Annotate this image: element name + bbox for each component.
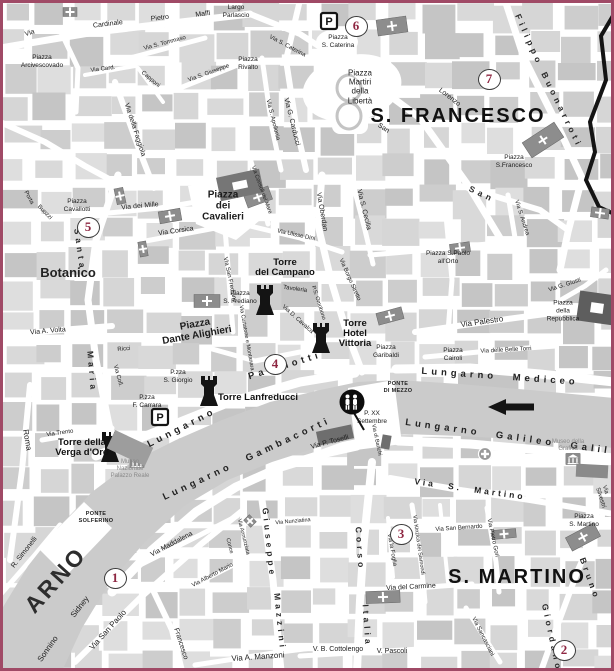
building-icon [576,291,614,326]
pedestrians-icon [340,390,365,415]
city-map[interactable]: P P ViaCardinalePietroMaffiLargo Parlasc… [0,0,614,671]
poi-marker-3[interactable]: 3 [390,524,413,545]
map-canvas: P P [0,0,614,671]
church-icon [590,207,609,219]
hospital-cross-icon [479,448,492,461]
poi-marker-6[interactable]: 6 [345,16,368,37]
building-icon [576,464,609,479]
church-icon [492,528,517,539]
svg-text:P: P [156,412,163,424]
poi-marker-5[interactable]: 5 [77,217,100,238]
parking-icon: P [321,13,337,29]
svg-text:P: P [325,16,332,28]
church-icon [63,8,77,17]
parking-icon: P [152,409,168,425]
museum-icon [566,453,581,465]
church-icon [366,590,400,603]
church-icon [194,295,220,308]
poi-marker-4[interactable]: 4 [264,354,287,375]
poi-marker-2[interactable]: 2 [553,640,576,661]
poi-marker-7[interactable]: 7 [478,69,501,90]
tower-icon [312,323,330,353]
poi-marker-1[interactable]: 1 [104,568,127,589]
